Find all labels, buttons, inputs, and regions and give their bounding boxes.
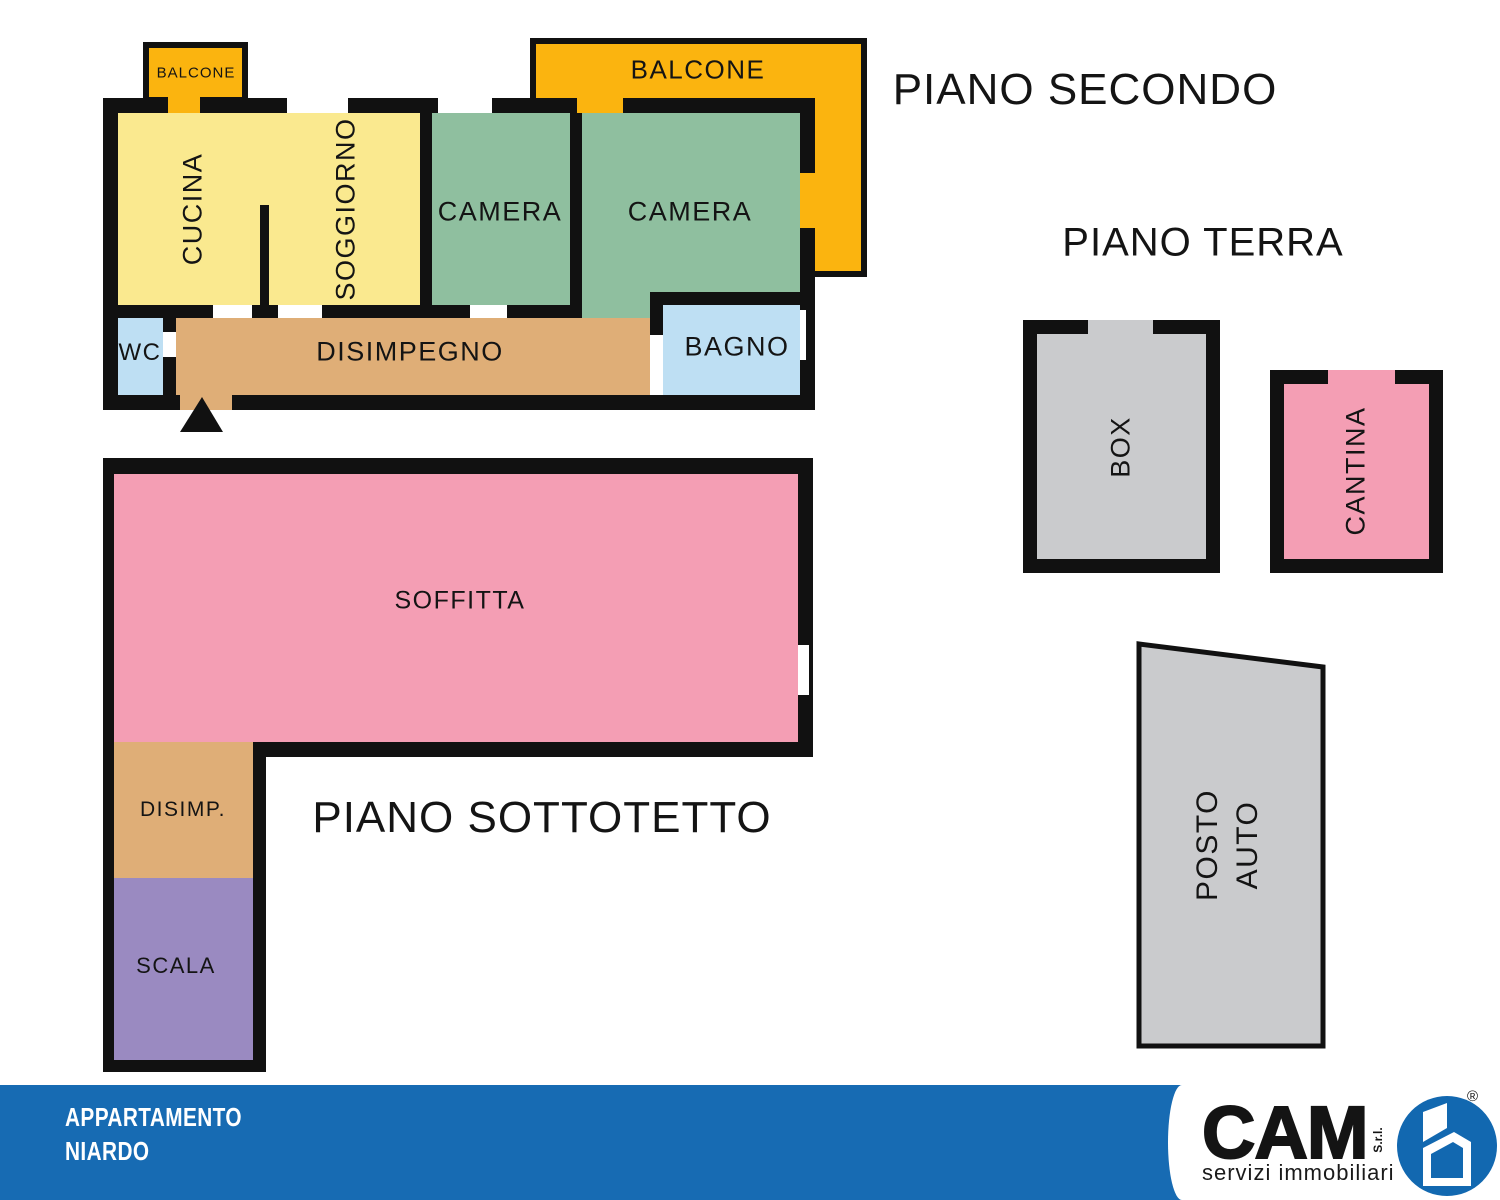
wall-partition-cucina: [260, 205, 269, 305]
room-label-disimp: DISIMP.: [140, 798, 226, 822]
wall-segment: [103, 395, 180, 410]
room-label-box: BOX: [1106, 416, 1137, 478]
title-piano-sottotetto: PIANO SOTTOTETTO: [312, 793, 771, 843]
logo-house-icon: [1397, 1096, 1497, 1196]
room-label-camera2: CAMERA: [628, 197, 753, 228]
wall-segment: [253, 742, 266, 1072]
wall-segment: [163, 357, 176, 395]
camera2-door-opening: [582, 305, 650, 318]
wall-segment: [232, 395, 815, 410]
wall-segment: [322, 305, 470, 318]
room-cucina-soggiorno: [118, 113, 420, 305]
title-piano-secondo: PIANO SECONDO: [893, 65, 1278, 115]
box-door-opening: [1088, 320, 1153, 334]
wall-segment: [253, 742, 813, 757]
room-label-soggiorno: SOGGIORNO: [331, 117, 362, 300]
wall-segment: [252, 305, 278, 318]
wall-segment: [200, 98, 287, 113]
footer-property-type: APPARTAMENTO: [65, 1102, 242, 1133]
wall-segment: [103, 98, 118, 410]
logo-cam-text: CAM: [1202, 1096, 1368, 1170]
wall-segment: [623, 98, 815, 113]
registered-trademark-icon: ®: [1467, 1088, 1478, 1105]
wall-segment: [163, 318, 176, 332]
floorplan-page: BALCONE BALCONE CUCINA SOGGIORNO CAMERA …: [0, 0, 1500, 1200]
wall-segment: [118, 305, 213, 318]
wall-segment: [800, 360, 815, 410]
wall-segment: [650, 292, 800, 305]
wall-segment: [348, 98, 438, 113]
room-label-scala: SCALA: [136, 953, 216, 979]
wall-segment: [103, 1060, 266, 1072]
room-label-bagno: BAGNO: [684, 332, 789, 363]
logo-srl-text: S.r.l.: [1371, 1120, 1385, 1160]
wall-segment: [103, 458, 114, 1072]
room-label-wc: WC: [119, 339, 162, 367]
wall-segment: [103, 458, 813, 474]
posto-auto-line2: AUTO: [1228, 789, 1268, 901]
wall-segment: [420, 113, 432, 316]
window-line: [809, 645, 813, 695]
cantina-door-opening: [1328, 370, 1395, 384]
title-piano-terra: PIANO TERRA: [1062, 221, 1343, 266]
room-label-balcone-large: BALCONE: [631, 55, 766, 86]
wall-segment: [492, 98, 577, 113]
room-label-camera1: CAMERA: [438, 197, 563, 228]
room-label-disimpegno: DISIMPEGNO: [316, 337, 504, 368]
balcone-door-opening: [168, 97, 200, 114]
room-label-cantina: CANTINA: [1341, 406, 1372, 535]
wall-segment: [800, 98, 815, 173]
wall-segment: [507, 305, 582, 318]
room-label-balcone-small: BALCONE: [157, 65, 236, 82]
wall-segment: [800, 228, 815, 310]
room-label-soffitta: SOFFITTA: [395, 587, 526, 616]
wall-segment: [798, 458, 813, 645]
room-label-posto-auto: POSTO AUTO: [1188, 789, 1268, 901]
footer-location: NIARDO: [65, 1136, 149, 1167]
logo-subtitle: servizi immobiliari: [1202, 1160, 1395, 1186]
wall-segment: [570, 113, 582, 305]
posto-auto-line1: POSTO: [1188, 789, 1228, 901]
room-label-cucina: CUCINA: [178, 153, 209, 266]
entrance-arrow-icon: [180, 397, 223, 432]
window-jamb: [806, 310, 815, 360]
